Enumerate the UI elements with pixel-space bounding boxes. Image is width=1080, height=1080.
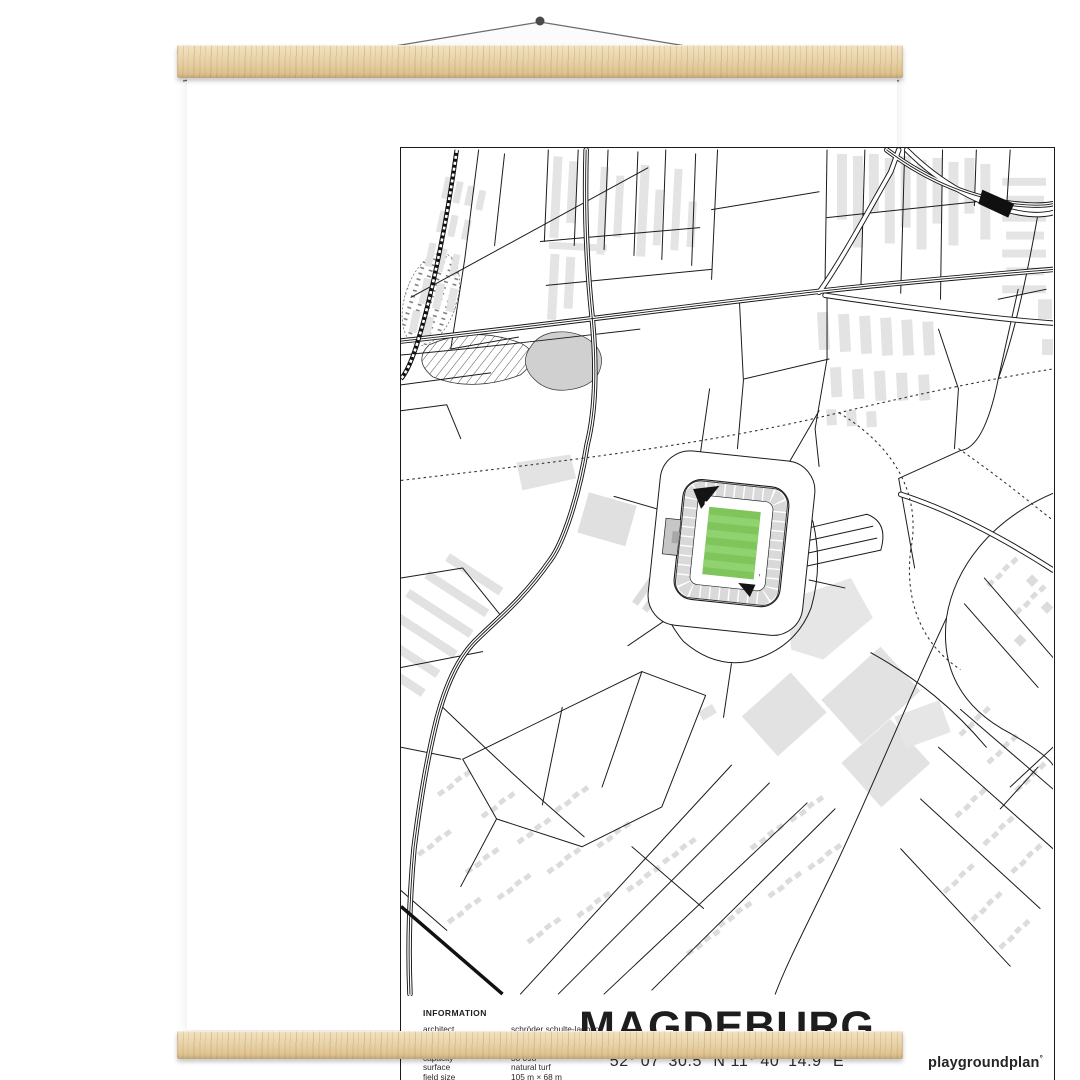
stadium-map [401,148,1053,996]
wall-pin [536,17,545,26]
stadium [645,448,818,638]
street-map-svg [401,148,1053,996]
map-frame: INFORMATION architectschröder schulte-la… [400,147,1055,1080]
product-photo-scene: INFORMATION architectschröder schulte-la… [0,0,1080,1080]
hanger-top-bar [177,45,903,78]
info-row: field size105 m × 68 m [423,1073,623,1080]
brand-logo: playgroundplan° [928,1054,1043,1071]
stadium-pitch [702,507,761,580]
brand-degree-mark: ° [1040,1054,1043,1063]
hanger-bottom-bar [177,1031,903,1059]
poster: INFORMATION architectschröder schulte-la… [187,62,897,1030]
info-value: 105 m × 68 m [511,1073,562,1080]
info-label: field size [423,1073,511,1080]
